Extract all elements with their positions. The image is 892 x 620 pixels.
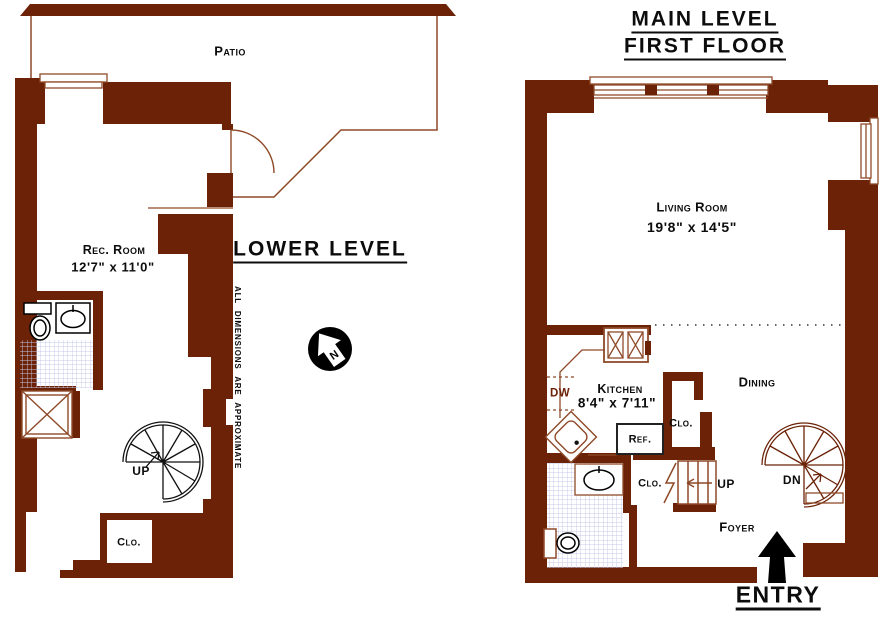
floor-plan-canvas: N	[0, 0, 892, 620]
sink-icon	[575, 464, 623, 495]
foyer-label: Foyer	[719, 521, 754, 534]
dishwasher-label: DW	[550, 388, 570, 400]
rec-room-dimensions: 12'7" x 11'0"	[71, 261, 154, 274]
lower-window-icon	[40, 74, 107, 88]
kitchen-closet-label: Clo.	[669, 419, 693, 430]
main-top-window-icon	[590, 77, 772, 98]
shower-icon	[22, 391, 72, 438]
lower-level-title: LOWER LEVEL	[233, 239, 407, 264]
living-room-dimensions: 19'8" x 14'5"	[647, 220, 737, 234]
refrigerator-label: Ref.	[629, 435, 652, 446]
kitchen-label: Kitchen	[597, 383, 642, 396]
spiral-stair-down-icon	[762, 423, 846, 507]
main-level-plan	[525, 77, 878, 583]
rec-room-label: Rec. Room	[83, 244, 146, 257]
main-bathroom	[544, 463, 623, 568]
main-right-window-icon	[861, 118, 878, 184]
staircase-up-icon	[664, 461, 716, 504]
main-stair-down-label: DN	[783, 474, 801, 486]
lower-bathroom	[20, 303, 93, 438]
patio-label: Patio	[214, 45, 246, 58]
main-stair-up-label: UP	[717, 478, 734, 490]
entry-label: ENTRY	[736, 584, 821, 611]
floor-plan-drawing: N	[0, 0, 892, 620]
dimensions-disclaimer: ALL DIMENSIONS ARE APPROXIMATE	[233, 286, 242, 469]
stair-closet-label: Clo.	[638, 479, 662, 490]
stove-icon	[604, 328, 651, 362]
dining-label: Dining	[739, 376, 776, 389]
compass-icon: N	[308, 325, 352, 371]
bifold-door-icon	[664, 463, 676, 503]
patio-cornice	[20, 4, 456, 197]
tile-floor	[20, 340, 93, 388]
living-room-label: Living Room	[656, 201, 727, 214]
kitchen-dimensions: 8'4" x 7'11"	[578, 396, 656, 410]
spiral-stair-up-icon	[123, 422, 203, 502]
sink-icon	[56, 303, 90, 333]
main-level-title-line1: MAIN LEVEL	[631, 9, 778, 34]
entry-arrow-icon	[758, 531, 796, 583]
main-level-title-line2: FIRST FLOOR	[624, 36, 786, 61]
lower-closet-label: Clo.	[117, 538, 141, 549]
patio-door-icon	[231, 130, 274, 173]
lower-stair-up-label: UP	[132, 465, 149, 477]
